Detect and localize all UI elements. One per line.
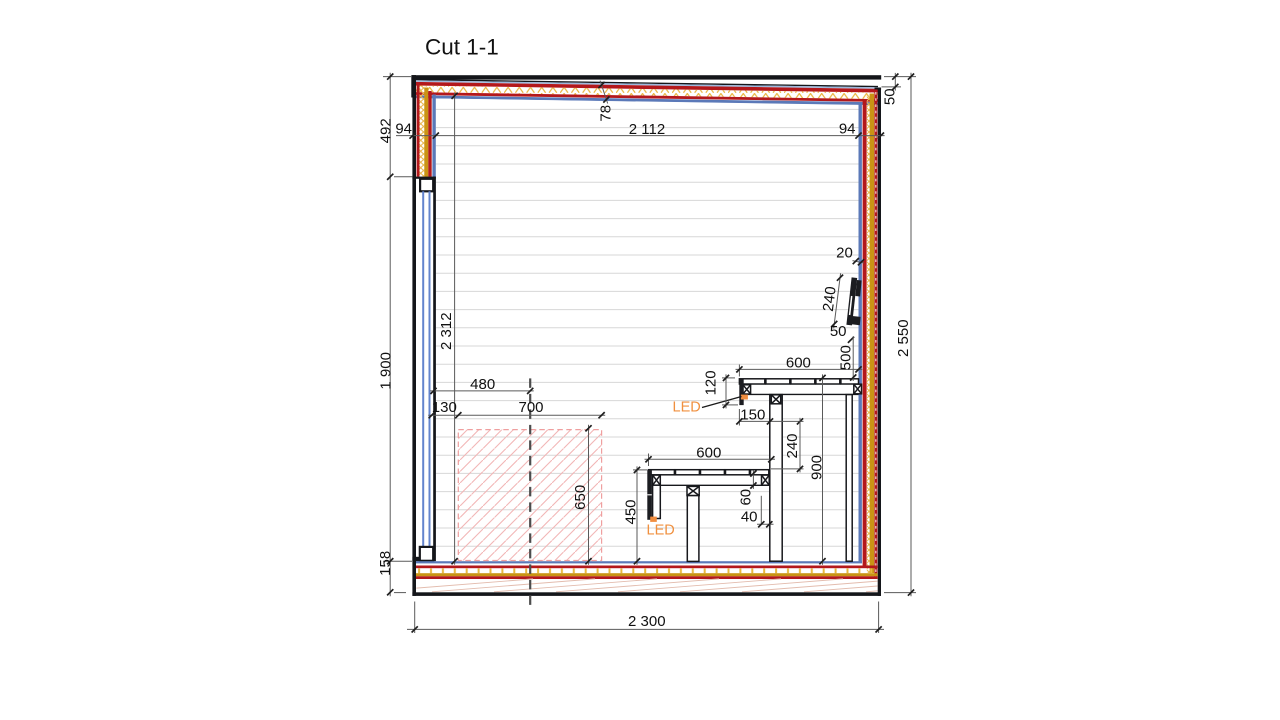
svg-text:94: 94 <box>395 121 412 138</box>
svg-text:600: 600 <box>786 354 811 371</box>
svg-text:600: 600 <box>696 444 721 461</box>
svg-text:78: 78 <box>597 105 614 122</box>
svg-text:60: 60 <box>737 489 754 506</box>
svg-text:40: 40 <box>741 509 758 526</box>
svg-text:LED: LED <box>673 400 701 416</box>
svg-text:2 112: 2 112 <box>629 121 665 138</box>
svg-text:1 900: 1 900 <box>378 352 395 390</box>
svg-text:20: 20 <box>836 244 853 261</box>
svg-text:500: 500 <box>838 345 855 370</box>
svg-text:120: 120 <box>703 370 720 395</box>
svg-text:158: 158 <box>377 551 394 576</box>
svg-text:900: 900 <box>808 455 825 480</box>
svg-text:50: 50 <box>882 88 899 105</box>
svg-text:130: 130 <box>432 399 457 416</box>
svg-text:2 312: 2 312 <box>438 312 455 350</box>
svg-text:700: 700 <box>518 399 543 416</box>
svg-text:240: 240 <box>784 433 801 458</box>
svg-text:450: 450 <box>623 499 640 524</box>
svg-text:150: 150 <box>740 406 765 423</box>
svg-text:LED: LED <box>647 523 675 539</box>
svg-text:480: 480 <box>470 376 495 393</box>
svg-text:94: 94 <box>839 121 856 138</box>
svg-text:50: 50 <box>830 323 847 340</box>
svg-text:240: 240 <box>820 286 840 313</box>
svg-text:2 300: 2 300 <box>628 613 666 630</box>
svg-text:492: 492 <box>378 118 395 143</box>
svg-text:2 550: 2 550 <box>895 319 912 357</box>
svg-text:Cut 1-1: Cut 1-1 <box>425 35 499 60</box>
svg-text:650: 650 <box>572 485 589 510</box>
